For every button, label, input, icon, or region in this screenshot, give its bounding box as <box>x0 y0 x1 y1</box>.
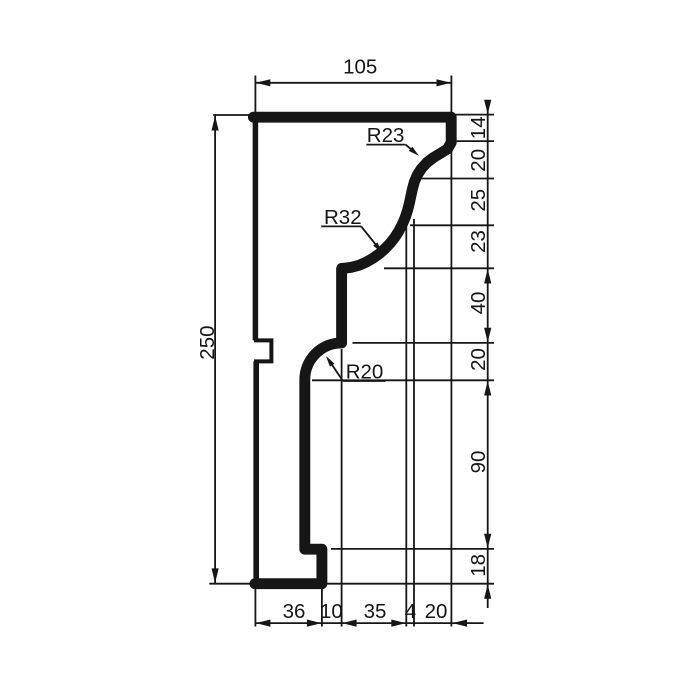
svg-text:35: 35 <box>364 600 387 623</box>
svg-text:20: 20 <box>467 348 490 371</box>
svg-text:10: 10 <box>320 600 343 623</box>
svg-text:20: 20 <box>425 600 448 623</box>
svg-text:250: 250 <box>196 325 219 359</box>
svg-text:40: 40 <box>467 292 490 315</box>
svg-text:25: 25 <box>467 189 490 212</box>
svg-text:4: 4 <box>405 600 416 623</box>
svg-text:23: 23 <box>467 230 490 253</box>
svg-text:R23: R23 <box>367 124 405 147</box>
svg-text:R20: R20 <box>346 360 384 383</box>
svg-text:20: 20 <box>467 149 490 172</box>
svg-text:14: 14 <box>467 116 490 139</box>
svg-text:105: 105 <box>343 56 377 79</box>
svg-text:90: 90 <box>467 451 490 474</box>
svg-text:R32: R32 <box>324 206 362 229</box>
svg-text:36: 36 <box>283 600 306 623</box>
svg-text:18: 18 <box>467 554 490 577</box>
